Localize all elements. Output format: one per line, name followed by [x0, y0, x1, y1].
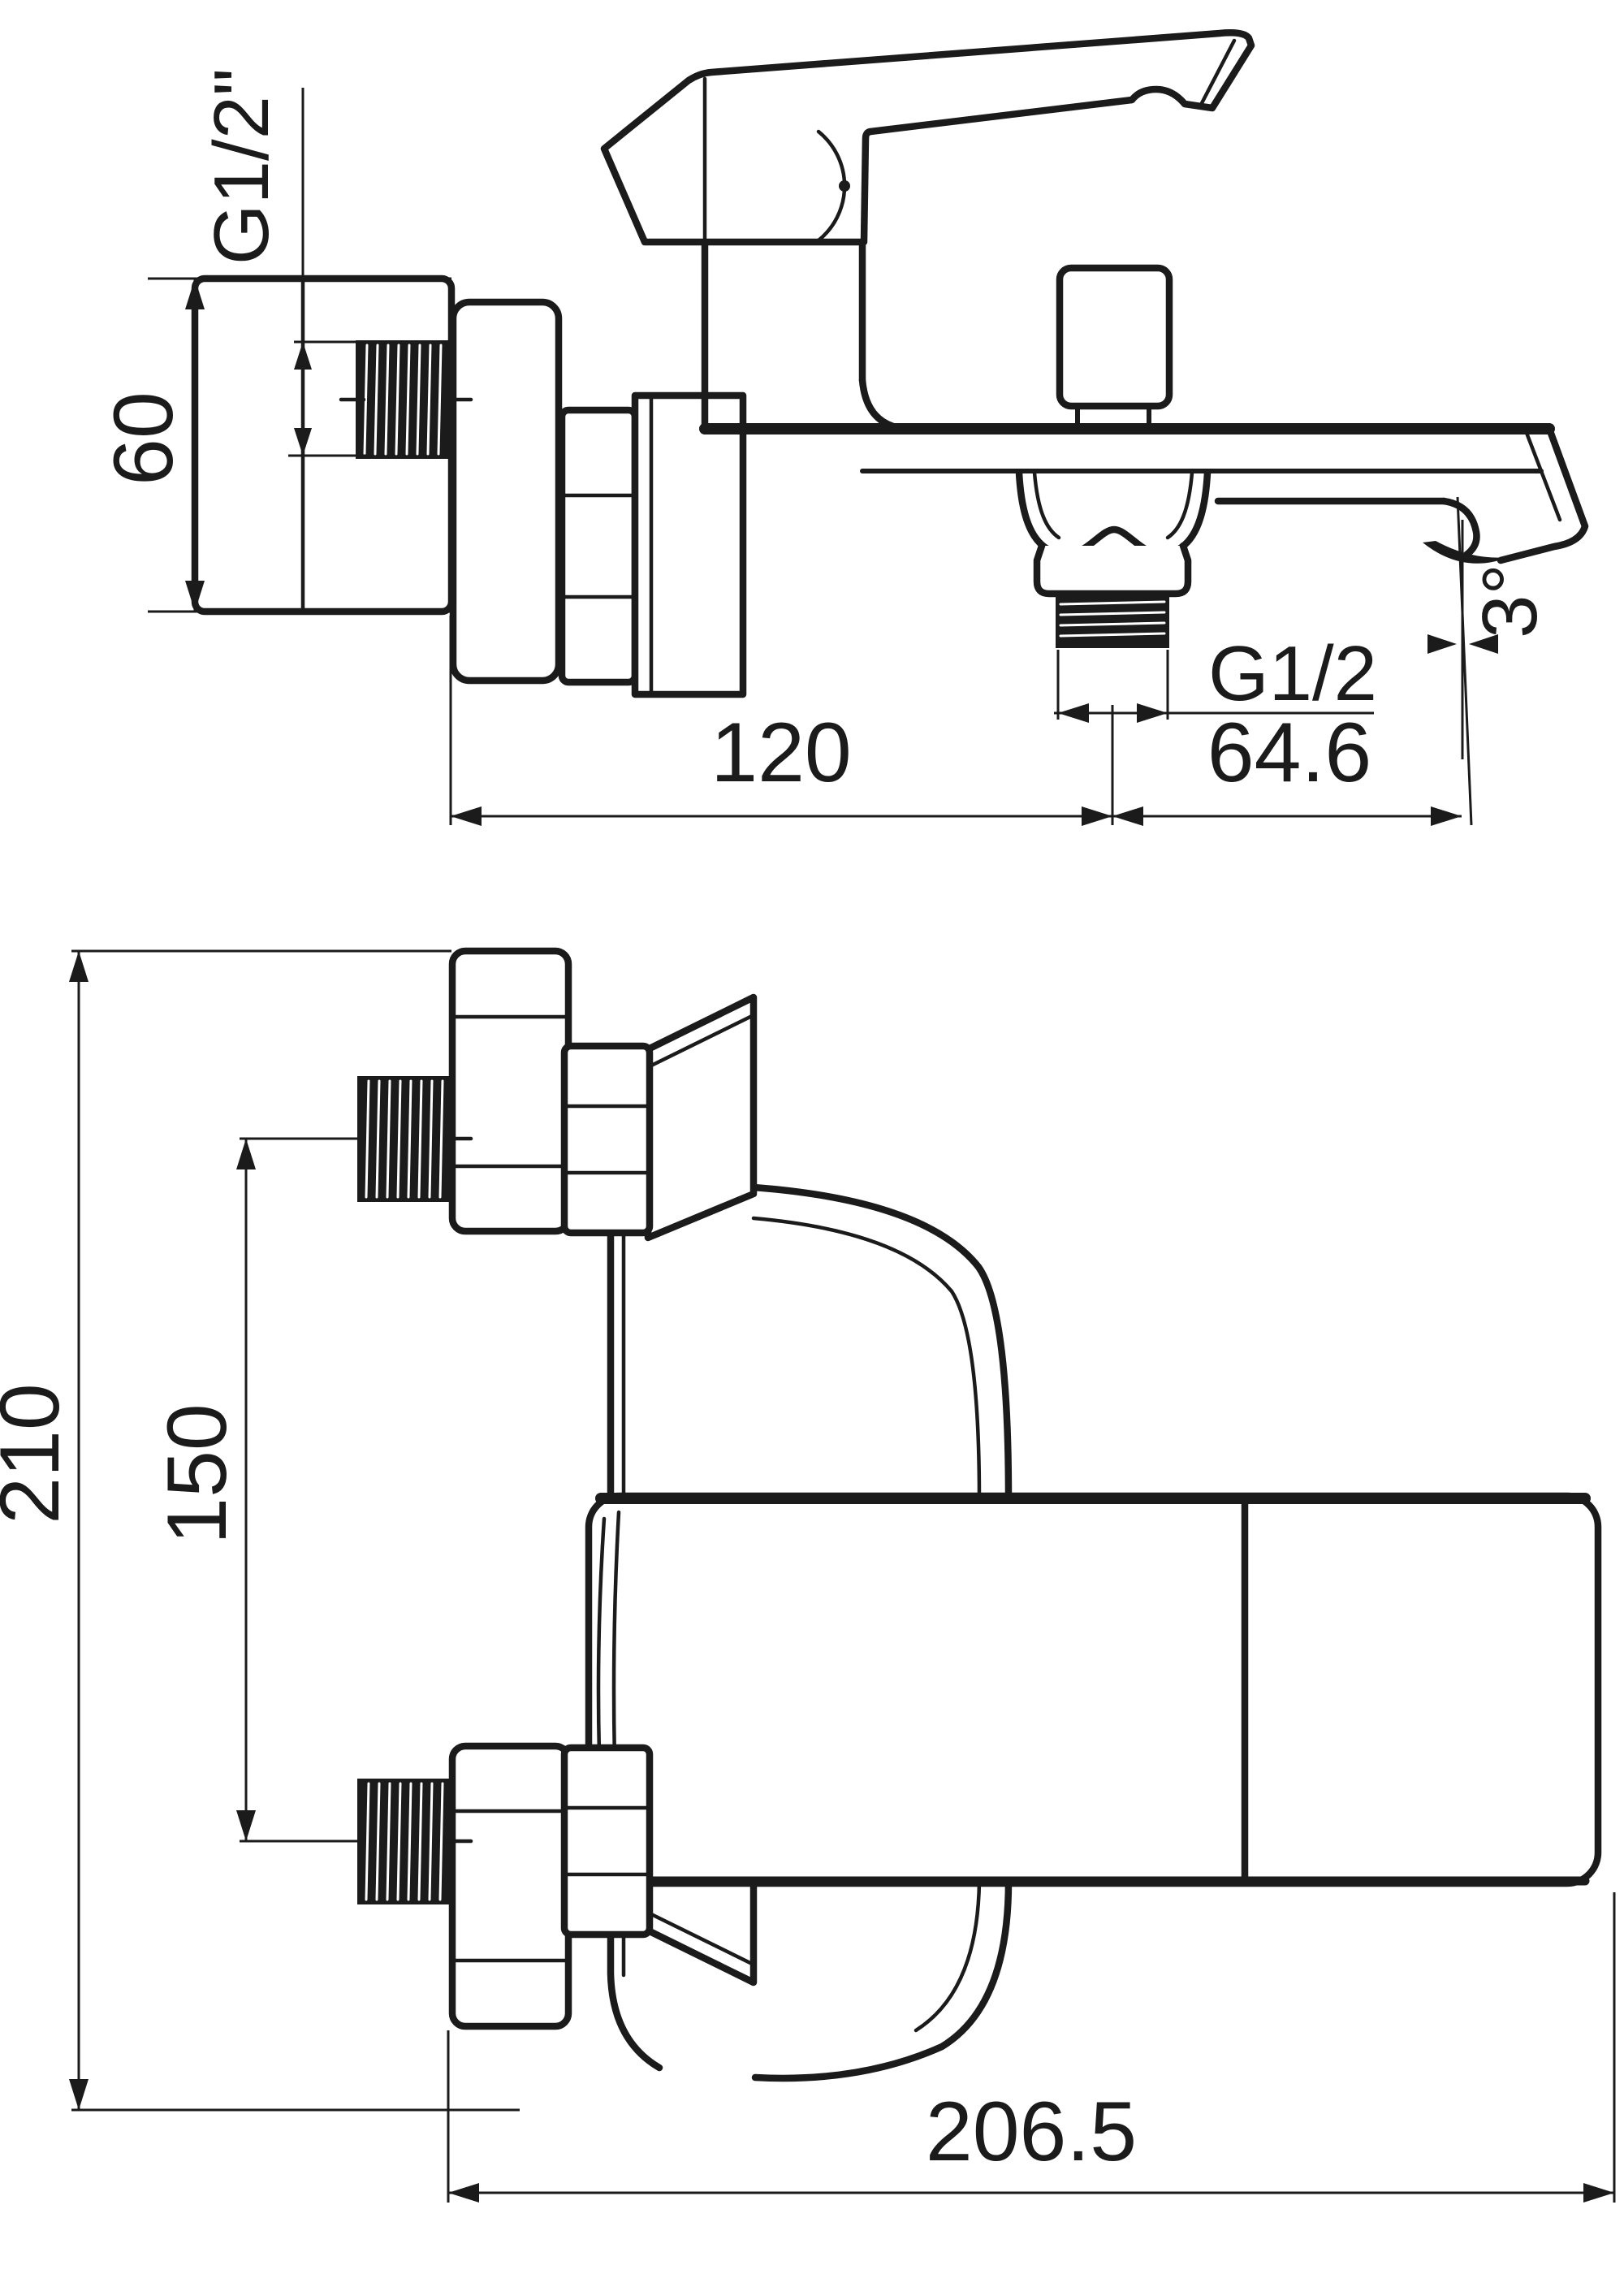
- upper-bracket-block: [452, 951, 568, 1231]
- shower-saddle-outline: [1019, 473, 1207, 555]
- saddle-inner-right: [1168, 473, 1192, 538]
- handle-front: [589, 1496, 1598, 1883]
- upper-hex-nut: [564, 1046, 650, 1233]
- dim-3deg-label: 3°: [1466, 564, 1553, 638]
- upper-wall-plate: [648, 997, 754, 1238]
- spout-tip-endface: [1501, 429, 1585, 560]
- dim-60-label: 60: [97, 391, 191, 486]
- lower-bracket-block: [452, 1746, 568, 2026]
- shower-outlet-boss: [1037, 546, 1188, 594]
- dim-64-6-label: 64.6: [1207, 706, 1371, 800]
- dim-210-label: 210: [0, 1383, 77, 1524]
- lower-neck-right-inner: [916, 1882, 979, 2030]
- upper-neck-right-inner: [754, 1218, 979, 1498]
- dim-150-label: 150: [150, 1403, 244, 1545]
- lower-neck-right-outer: [755, 1882, 1009, 2078]
- lower-hex-nut: [564, 1748, 650, 1935]
- front-view: 210 150 206.5: [0, 951, 1614, 2203]
- cartridge-screw-dot: [839, 180, 850, 192]
- wall-backplate-side: [453, 302, 559, 681]
- saddle-inner-left: [1034, 473, 1059, 538]
- dim-206-5-label: 206.5: [926, 2085, 1137, 2179]
- faucet-dimension-drawing: 60 G1/2" 120 64.6 G1/2: [0, 0, 1624, 2274]
- wall-thread-side: [341, 340, 471, 459]
- body-shoulder-curve: [862, 380, 893, 426]
- diverter-knob: [1060, 268, 1169, 406]
- technical-drawing-page: 60 G1/2" 120 64.6 G1/2: [0, 0, 1624, 2274]
- shower-outlet-thread: [1056, 594, 1169, 648]
- hex-nut-side: [562, 410, 635, 682]
- lever-handle-outline: [604, 32, 1251, 242]
- dim-120-label: 120: [710, 706, 852, 800]
- side-view: 60 G1/2" 120 64.6 G1/2: [97, 32, 1585, 826]
- dim-g12-outlet-label: G1/2: [1208, 630, 1377, 717]
- dim-g12-wall-label: G1/2": [198, 68, 285, 265]
